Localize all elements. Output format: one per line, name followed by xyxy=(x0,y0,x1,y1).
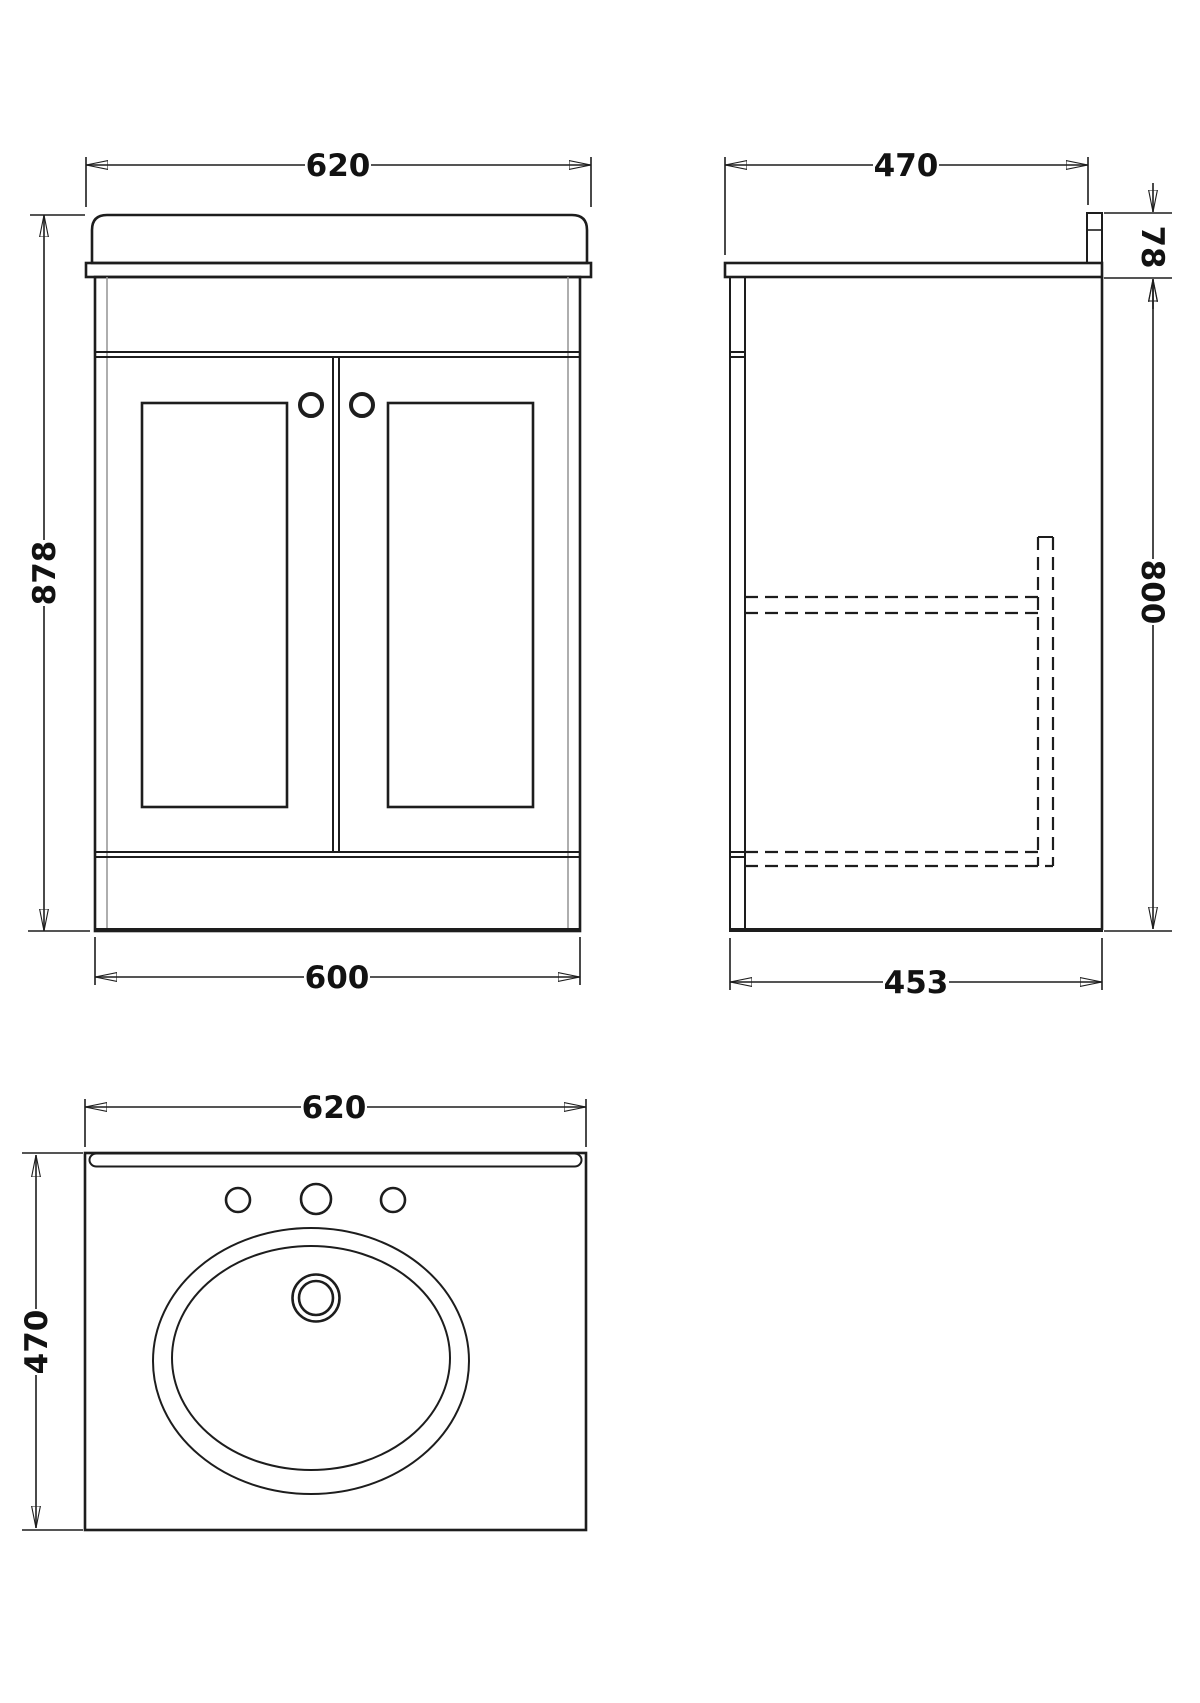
dim-label: 453 xyxy=(884,965,949,1001)
side-dim-cabinet-height: 800 xyxy=(1104,280,1172,931)
dim-label: 800 xyxy=(1134,560,1170,625)
dim-label: 620 xyxy=(302,1090,367,1126)
dim-label: 878 xyxy=(27,541,63,606)
plan-worktop-outline xyxy=(85,1153,586,1530)
front-dim-left-height: 878 xyxy=(27,215,90,931)
front-left-door-panel xyxy=(142,403,287,807)
plan-tap-hole-right xyxy=(381,1188,405,1212)
drawing-canvas: 620 878 600 xyxy=(0,0,1200,1698)
side-dim-top-depth: 470 xyxy=(725,148,1088,255)
vanity-technical-drawing: 620 878 600 xyxy=(0,0,1200,1698)
front-left-door-knob xyxy=(300,394,322,416)
front-countertop xyxy=(92,215,587,263)
plan-dim-top-width: 620 xyxy=(85,1090,586,1147)
dim-label: 620 xyxy=(306,148,371,184)
plan-back-edge-band xyxy=(90,1154,582,1167)
front-countertop-lip xyxy=(86,263,591,277)
plan-tap-hole-left xyxy=(226,1188,250,1212)
front-cabinet-outline xyxy=(95,277,580,931)
side-dim-worktop-height: 78 xyxy=(1104,183,1172,309)
front-right-door-panel xyxy=(388,403,533,807)
plan-basin-inner-rim xyxy=(172,1246,450,1470)
plan-dim-left-depth: 470 xyxy=(19,1153,83,1530)
dim-label: 78 xyxy=(1134,225,1170,268)
front-dim-top-width: 620 xyxy=(86,148,591,207)
plan-basin-outer-rim xyxy=(153,1228,469,1494)
dim-label: 600 xyxy=(305,960,370,996)
side-dim-bottom-depth: 453 xyxy=(730,938,1102,1001)
plan-tap-hole-center xyxy=(301,1184,331,1214)
dim-label: 470 xyxy=(874,148,939,184)
plan-waste-hole-inner xyxy=(299,1281,333,1315)
front-view xyxy=(86,215,591,931)
front-dim-bottom-width: 600 xyxy=(95,937,580,996)
side-worktop-slab xyxy=(725,263,1102,277)
front-right-door-knob xyxy=(351,394,373,416)
side-view xyxy=(725,213,1103,930)
dim-label: 470 xyxy=(19,1310,55,1375)
plan-view xyxy=(85,1153,586,1530)
side-upstand xyxy=(1087,213,1102,263)
